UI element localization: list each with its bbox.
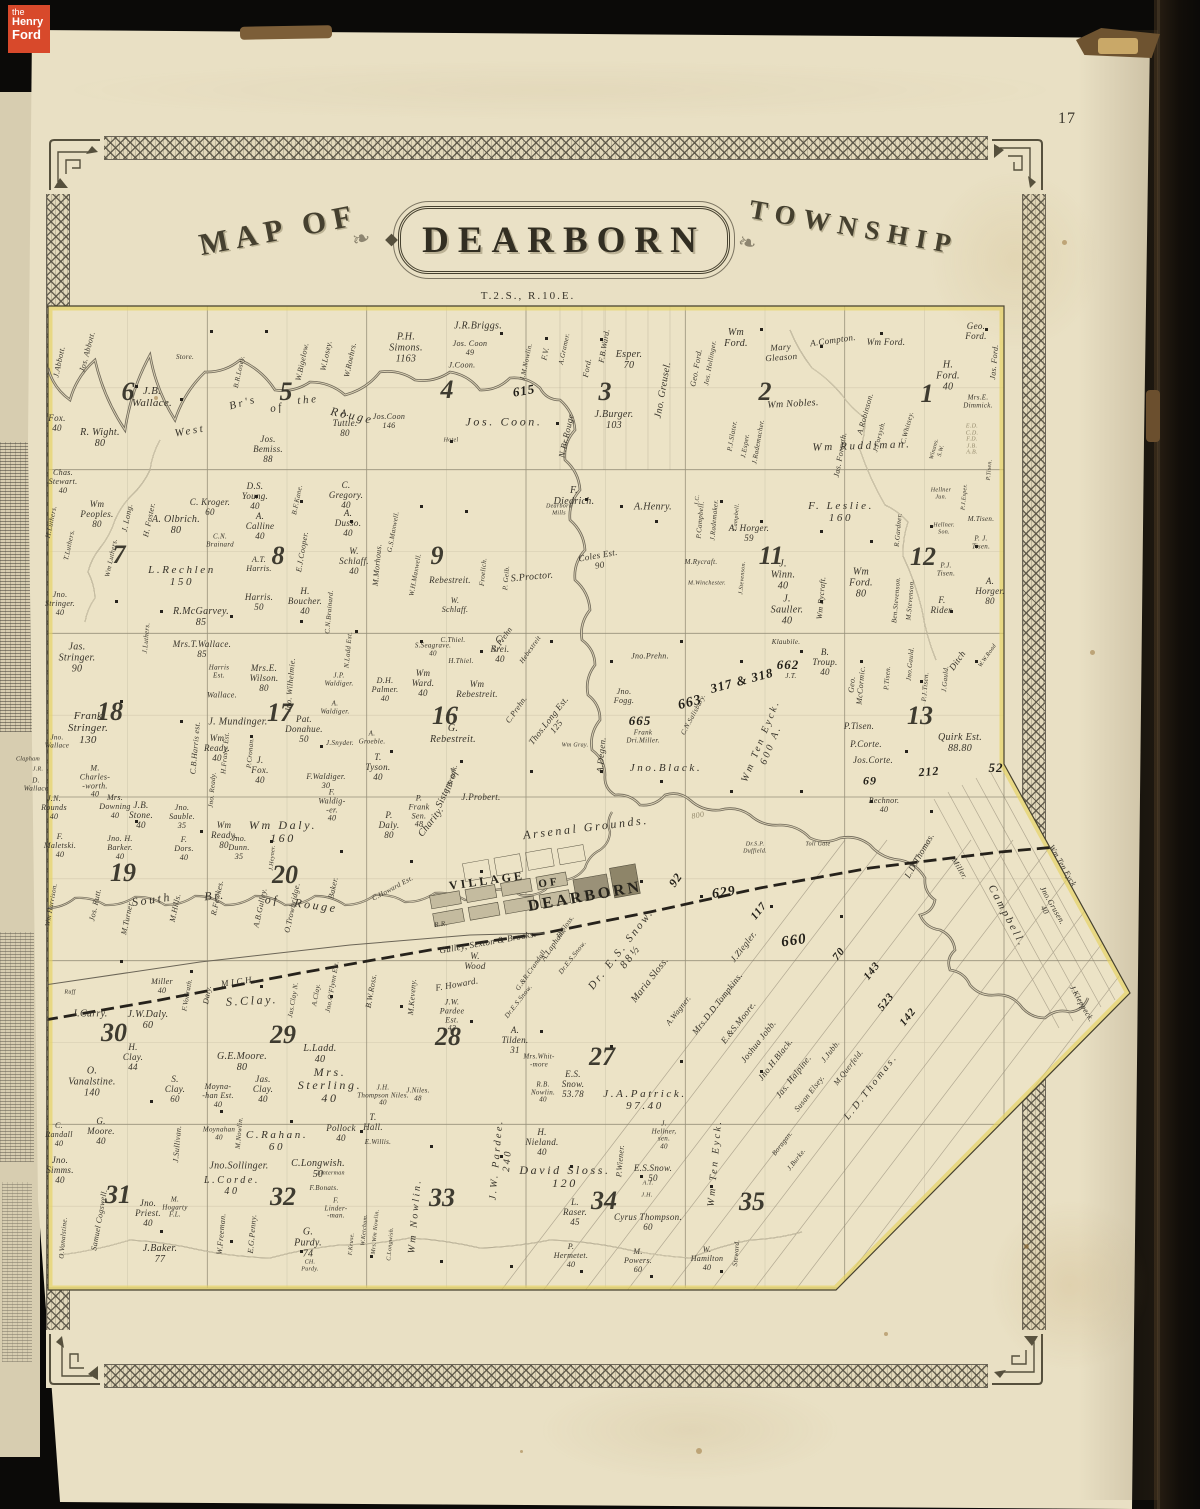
house-dot	[540, 1030, 543, 1033]
house-dot	[135, 820, 138, 823]
house-dot	[640, 1175, 643, 1178]
house-dot	[340, 850, 343, 853]
house-dot	[870, 540, 873, 543]
house-dot	[120, 960, 123, 963]
house-dot	[390, 750, 393, 753]
house-dot	[720, 500, 723, 503]
foxing-speck	[154, 396, 158, 400]
house-dot	[430, 1145, 433, 1148]
house-dot	[620, 505, 623, 508]
house-dot	[300, 620, 303, 623]
page-stain	[540, 1380, 840, 1480]
house-dot	[300, 1250, 303, 1253]
house-dot	[545, 337, 548, 340]
house-dot	[230, 1240, 233, 1243]
house-dot	[700, 895, 703, 898]
house-dot	[870, 800, 873, 803]
house-dot	[500, 1155, 503, 1158]
house-dot	[905, 750, 908, 753]
house-dot	[350, 520, 353, 523]
house-dot	[270, 840, 273, 843]
house-dot	[930, 525, 933, 528]
house-dot	[920, 680, 923, 683]
house-dot	[300, 500, 303, 503]
house-dot	[680, 1060, 683, 1063]
house-dot	[470, 1020, 473, 1023]
house-dot	[610, 1045, 613, 1048]
house-dot	[370, 1255, 373, 1258]
foxing-speck	[696, 1448, 702, 1454]
house-dot	[556, 422, 559, 425]
house-dot	[120, 700, 123, 703]
house-dot	[250, 735, 253, 738]
house-dot	[410, 860, 413, 863]
house-dot	[530, 770, 533, 773]
house-dot	[260, 985, 263, 988]
house-dot	[265, 330, 268, 333]
house-dot	[760, 328, 763, 331]
house-dot	[320, 745, 323, 748]
house-dot	[420, 505, 423, 508]
house-dot	[610, 660, 613, 663]
house-dot	[680, 640, 683, 643]
page-stain	[60, 60, 1060, 120]
house-dot	[820, 530, 823, 533]
house-dot	[150, 1100, 153, 1103]
page-stain	[990, 1200, 1150, 1370]
house-dot	[160, 610, 163, 613]
house-dot	[770, 905, 773, 908]
foxing-speck	[1062, 240, 1067, 245]
house-dot	[510, 1265, 513, 1268]
house-dot	[210, 330, 213, 333]
house-dot	[200, 830, 203, 833]
house-dot	[330, 995, 333, 998]
house-dot	[230, 615, 233, 618]
house-dot	[460, 760, 463, 763]
house-dot	[420, 640, 423, 643]
house-dot	[720, 1270, 723, 1273]
house-dot	[800, 790, 803, 793]
atlas-page-scan: the Henry Ford 17 MAP OF DEARBORN T	[0, 0, 1200, 1509]
house-dot	[730, 790, 733, 793]
house-dot	[800, 650, 803, 653]
house-dot	[440, 1260, 443, 1263]
house-dot	[600, 770, 603, 773]
house-dot	[760, 520, 763, 523]
house-dot	[600, 338, 603, 341]
house-dot	[480, 650, 483, 653]
foxing-speck	[520, 1450, 523, 1453]
house-dot	[640, 880, 643, 883]
house-dot	[115, 600, 118, 603]
house-dot	[930, 810, 933, 813]
house-dot	[255, 495, 258, 498]
house-dot	[400, 1005, 403, 1008]
house-dot	[550, 640, 553, 643]
house-dot	[570, 1165, 573, 1168]
house-dot	[655, 520, 658, 523]
house-dot	[360, 1130, 363, 1133]
house-dot	[820, 600, 823, 603]
house-dot	[585, 498, 588, 501]
house-dot	[180, 398, 183, 401]
house-dot	[975, 545, 978, 548]
foxing-speck	[1090, 650, 1095, 655]
house-dot	[220, 1110, 223, 1113]
foxing-speck	[1024, 1244, 1029, 1249]
house-dot	[860, 660, 863, 663]
house-dot	[290, 1120, 293, 1123]
house-dot	[975, 660, 978, 663]
house-dot	[650, 1275, 653, 1278]
house-dot	[355, 630, 358, 633]
house-dot	[180, 720, 183, 723]
house-dot	[950, 610, 953, 613]
house-dot	[820, 345, 823, 348]
foxing-speck	[884, 1332, 888, 1336]
house-dot	[450, 440, 453, 443]
house-dot	[760, 1070, 763, 1073]
house-dot	[190, 970, 193, 973]
house-dot	[135, 385, 138, 388]
house-dot	[160, 1230, 163, 1233]
house-dot	[480, 870, 483, 873]
house-dot	[880, 332, 883, 335]
page-stain	[930, 170, 1100, 350]
house-dot	[660, 780, 663, 783]
house-dot	[740, 660, 743, 663]
house-dot	[500, 332, 503, 335]
house-dot	[465, 510, 468, 513]
house-dot	[840, 915, 843, 918]
house-dot	[580, 1270, 583, 1273]
house-dot	[710, 1185, 713, 1188]
